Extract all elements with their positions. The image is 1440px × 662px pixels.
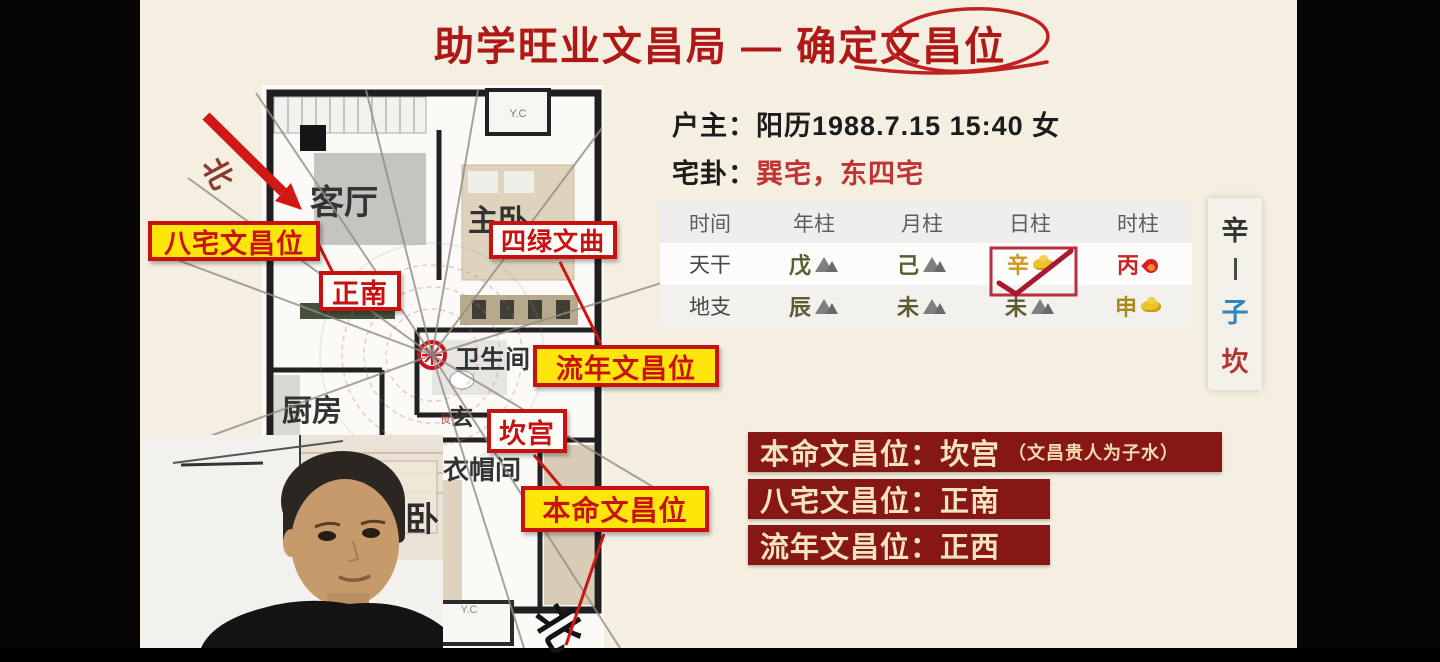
summary-note: （文昌贵人为子水）: [1000, 439, 1179, 465]
summary-label: 本命文昌位：: [760, 431, 940, 473]
col-header-day: 日柱: [976, 203, 1084, 243]
owner-value: 阳历1988.7.15 15:40 女: [756, 111, 1060, 141]
title-circled-text: 文昌位: [880, 25, 1006, 69]
row-header-branches: 地支: [660, 285, 760, 327]
col-header-hour: 时柱: [1084, 203, 1192, 243]
col-header-month: 月柱: [868, 203, 976, 243]
room-label-kitchen: 厨房: [282, 386, 342, 430]
callout-bazhai-wenchang: 八宅文昌位: [148, 221, 320, 261]
mountain-icon: [815, 256, 839, 272]
gold-icon: [1141, 301, 1161, 312]
plan-black-square: [300, 125, 326, 151]
col-header-year: 年柱: [760, 203, 868, 243]
cell-year-stem: 戊: [760, 243, 868, 285]
room-label-bathroom: 卫生间: [455, 340, 530, 376]
strip-divider: [1234, 258, 1237, 280]
day-master-strip: 辛 子 坎: [1208, 198, 1262, 390]
mountain-icon: [1031, 298, 1055, 314]
title-prefix: 助学旺业文昌局 — 确定: [434, 25, 880, 69]
owner-info: 户主：阳历1988.7.15 15:40 女: [672, 104, 1060, 143]
cell-day-stem: 辛: [976, 243, 1084, 285]
vent-label: Y.C: [510, 108, 527, 120]
cell-hour-stem: 丙: [1084, 243, 1192, 285]
strip-stem: 辛: [1222, 209, 1249, 248]
strip-branch: 子: [1222, 291, 1249, 330]
pillarbox-left: [0, 0, 140, 648]
callout-due-south: 正南: [319, 271, 401, 311]
mountain-icon: [815, 298, 839, 314]
mountain-icon: [923, 256, 947, 272]
fire-icon: [1143, 255, 1159, 273]
cell-year-branch: 辰: [760, 285, 868, 327]
callout-liunian-wenchang: 流年文昌位: [533, 345, 719, 387]
summary-label: 八宅文昌位：: [760, 478, 940, 520]
room-label-foyer: 玄: [450, 398, 473, 432]
owner-label: 户主：: [672, 111, 756, 141]
col-header-time: 时间: [660, 203, 760, 243]
gua-value: 巽宅，东四宅: [756, 159, 924, 189]
summary-label: 流年文昌位：: [760, 524, 940, 566]
mountain-icon: [923, 298, 947, 314]
callout-kan-palace: 坎宫: [487, 409, 567, 453]
row-header-stems: 天干: [660, 243, 760, 285]
cell-day-branch: 未: [976, 285, 1084, 327]
summary-value: 坎宫: [940, 431, 1000, 473]
room-label-living: 客厅: [310, 175, 378, 224]
gua-label: 宅卦：: [672, 159, 756, 189]
gold-icon: [1033, 259, 1053, 270]
slide: Y.C 艮 客厅 主卧 卫生间 厨房 玄 衣帽间: [0, 0, 1440, 648]
callout-silu-wenqu: 四绿文曲: [489, 221, 617, 259]
summary-benming: 本命文昌位： 坎宫 （文昌贵人为子水）: [748, 432, 1222, 472]
slide-title: 助学旺业文昌局 — 确定文昌位: [143, 14, 1297, 72]
cell-hour-branch: 申: [1084, 285, 1192, 327]
cell-month-branch: 未: [868, 285, 976, 327]
callout-benming-wenchang: 本命文昌位: [521, 486, 709, 532]
room-label-cloakroom: 衣帽间: [443, 450, 521, 487]
summary-liunian: 流年文昌位： 正西: [748, 525, 1050, 565]
compass-hub-icon: [419, 342, 445, 368]
four-pillars-table: 时间 年柱 月柱 日柱 时柱 天干 戊 己 辛 丙 地支 辰 未: [660, 203, 1192, 327]
summary-value: 正南: [940, 478, 1000, 520]
webcam-presenter: 次卧: [143, 435, 443, 648]
house-gua-info: 宅卦：巽宅，东四宅: [672, 152, 924, 191]
strip-trigram: 坎: [1222, 340, 1249, 379]
pillarbox-right: [1297, 0, 1440, 648]
cell-month-stem: 己: [868, 243, 976, 285]
summary-value: 正西: [940, 524, 1000, 566]
summary-bazhai: 八宅文昌位： 正南: [748, 479, 1050, 519]
